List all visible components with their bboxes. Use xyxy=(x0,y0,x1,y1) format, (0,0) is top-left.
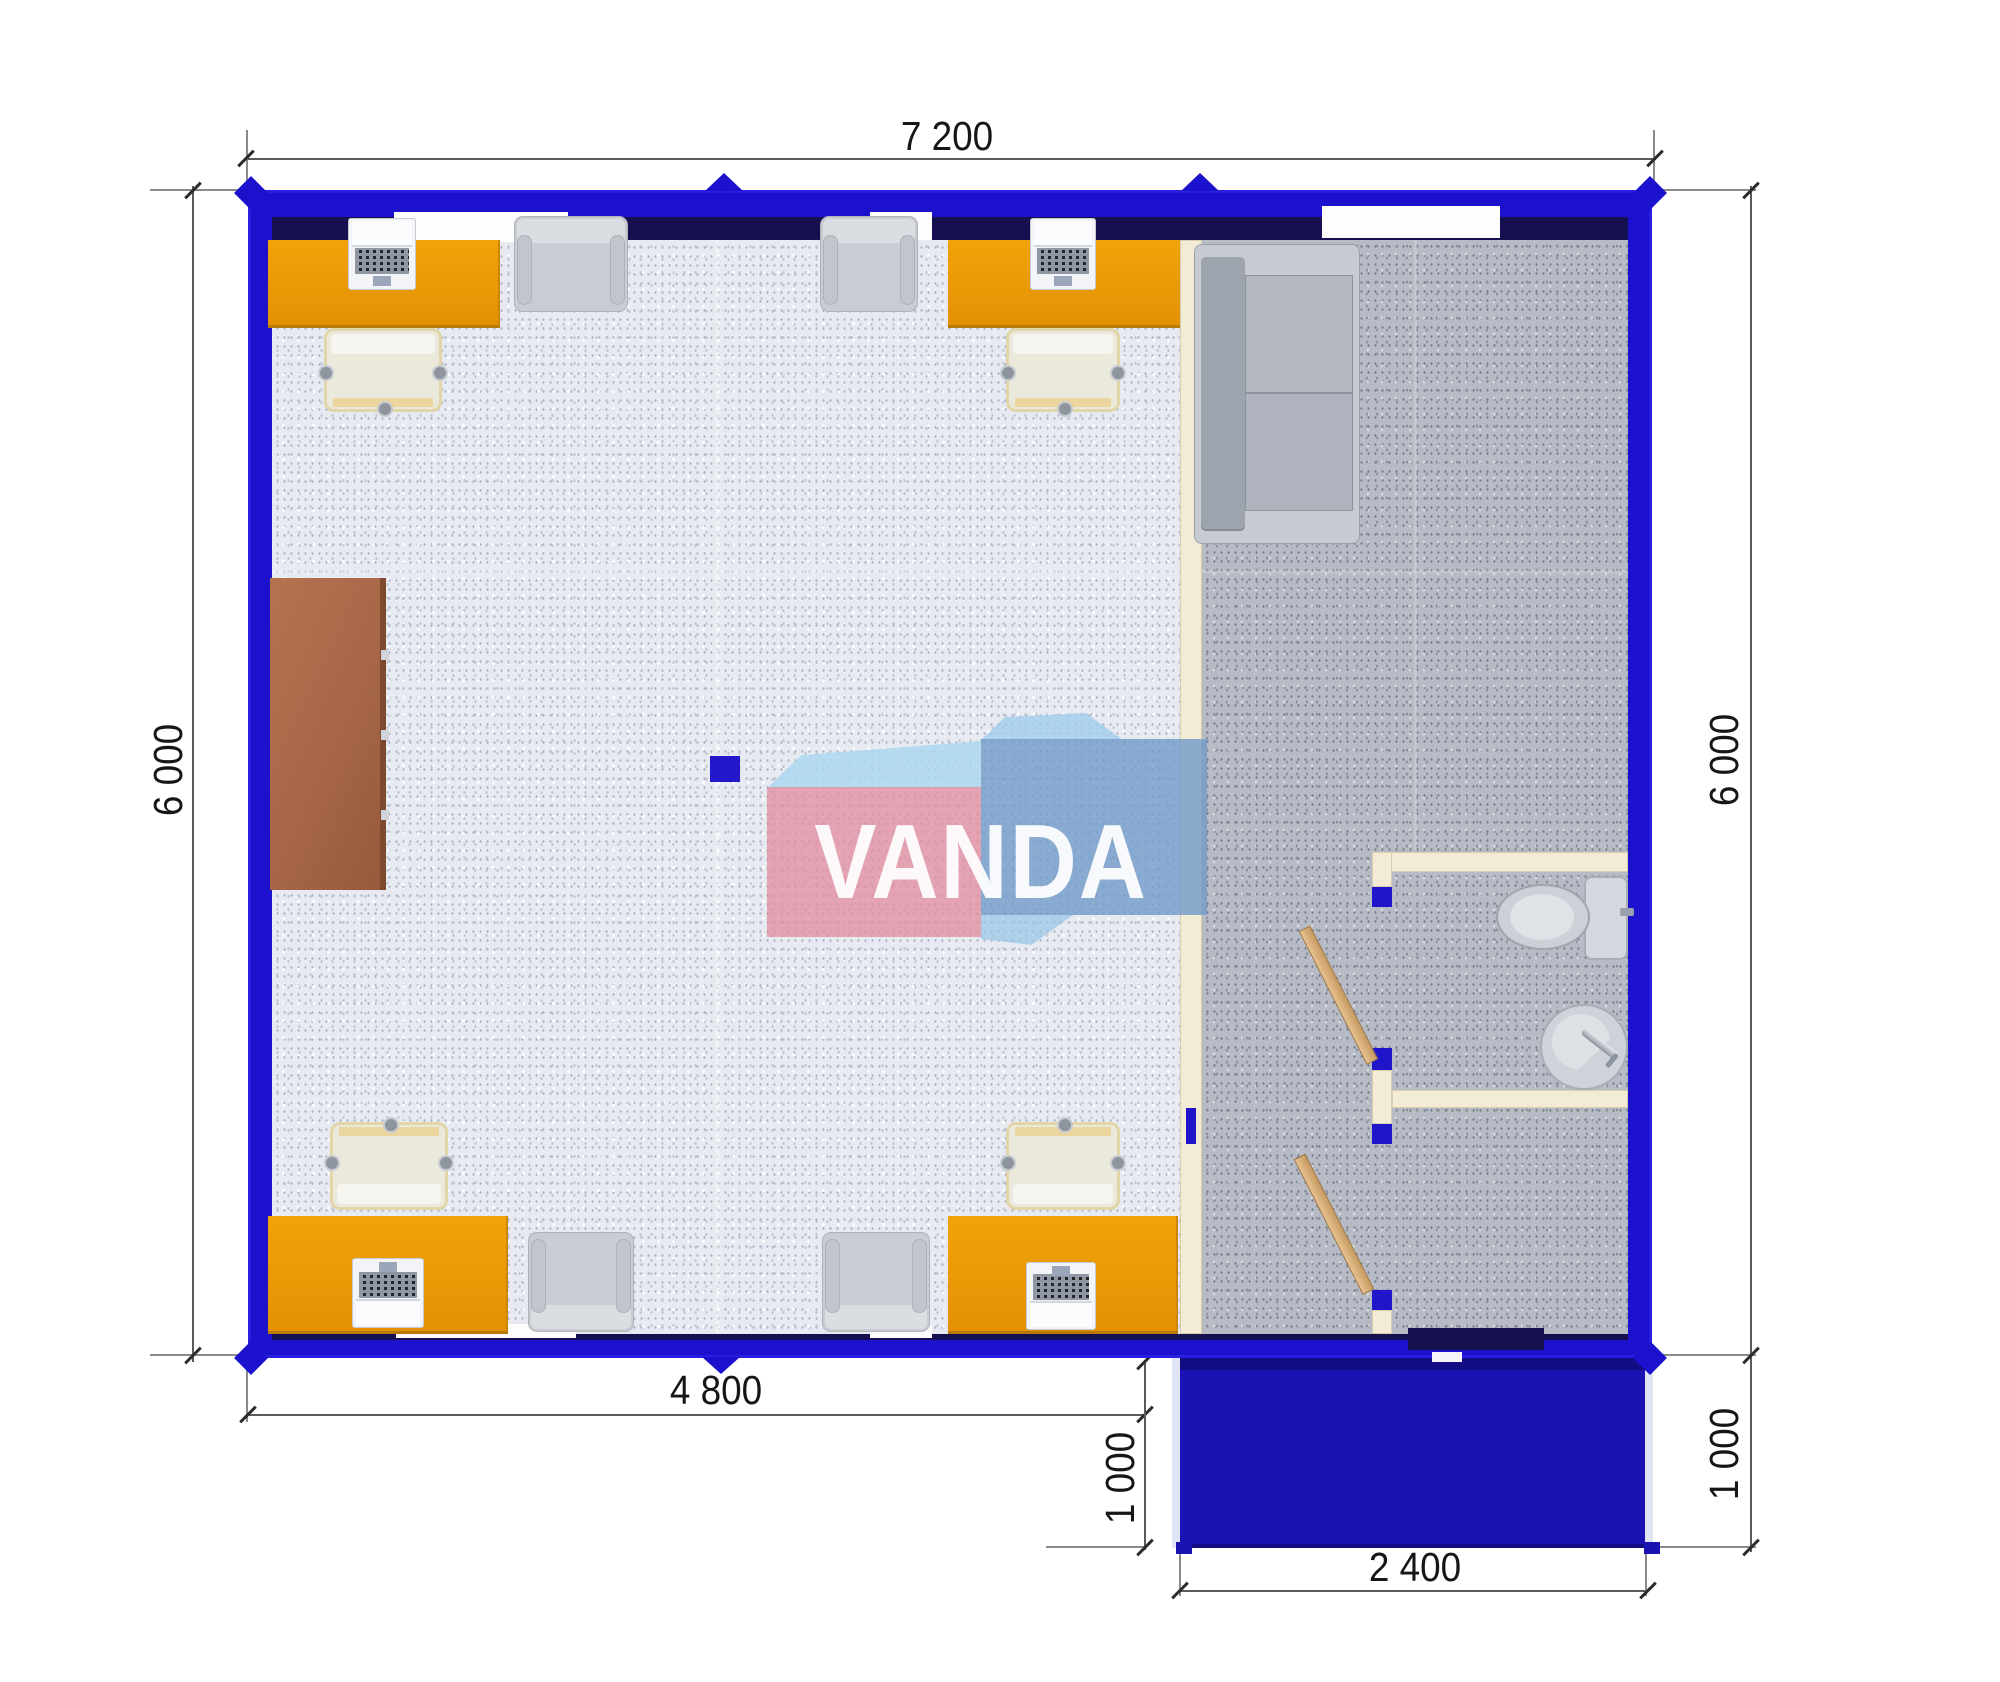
laptop-trackpad xyxy=(373,276,391,286)
watermark-text: VANDA xyxy=(792,806,1170,918)
porch-corner-post xyxy=(1176,1542,1192,1554)
sofa-seat xyxy=(1245,393,1353,511)
laptop-keyboard xyxy=(1037,248,1089,274)
cabinet-hinge xyxy=(381,730,389,740)
floor-plan-canvas: 7 200 6 000 6 000 1 000 4 800 1 000 2 40… xyxy=(0,0,2000,1682)
chair-wheel xyxy=(1110,365,1126,381)
armchair-back xyxy=(517,219,625,243)
floor-seam xyxy=(1414,240,1417,850)
laptop-keyboard xyxy=(355,248,409,274)
chair-wheel xyxy=(1000,365,1016,381)
extension-line xyxy=(1652,1354,1756,1356)
laptop-trackpad xyxy=(1054,276,1072,286)
entrance-door xyxy=(1408,1328,1544,1350)
wash-basin xyxy=(1540,1004,1628,1090)
laptop-trackpad xyxy=(1052,1266,1070,1276)
laptop-keyboard xyxy=(359,1272,417,1298)
extension-line xyxy=(150,189,246,191)
office-chair-1 xyxy=(324,328,442,412)
armchair-armrest xyxy=(912,1239,927,1313)
toilet-seat xyxy=(1510,894,1574,940)
porch-corner-post xyxy=(1644,1542,1660,1554)
office-chair-2 xyxy=(1006,328,1120,412)
module-joint-marker-top xyxy=(1181,173,1219,191)
chair-wheel xyxy=(383,1117,399,1133)
door-jamb xyxy=(1372,887,1392,907)
chair-wheel xyxy=(438,1155,454,1171)
extension-line xyxy=(1652,1546,1756,1548)
armchair-armrest xyxy=(531,1239,546,1313)
floor-seam xyxy=(272,1100,1180,1103)
module-joint-marker-top xyxy=(705,173,743,191)
toilet-tank xyxy=(1584,876,1628,960)
laptop-screen xyxy=(1034,221,1092,247)
chair-wheel xyxy=(1000,1155,1016,1171)
door-jamb xyxy=(1372,1124,1392,1144)
chair-back xyxy=(1013,1184,1113,1204)
floor-seam xyxy=(272,570,1180,573)
chair-wheel xyxy=(432,365,448,381)
laptop-keyboard xyxy=(1033,1274,1089,1300)
chair-wheel xyxy=(318,365,334,381)
chair-wheel xyxy=(324,1155,340,1171)
dimension-line-porch-left xyxy=(1144,1360,1146,1550)
window-top-3 xyxy=(1322,206,1500,238)
chair-wheel xyxy=(1057,401,1073,417)
office-chair-3 xyxy=(330,1122,448,1210)
dimension-label-porch-left: 1 000 xyxy=(1098,1402,1142,1555)
laptop-4 xyxy=(1026,1262,1096,1330)
armchair-1 xyxy=(514,216,628,312)
chair-wheel xyxy=(1057,1117,1073,1133)
floor-seam xyxy=(716,240,719,1334)
laptop-2 xyxy=(1030,218,1096,290)
dimension-label-office-width: 4 800 xyxy=(640,1368,793,1412)
porch-edge-left xyxy=(1172,1358,1180,1548)
support-column xyxy=(710,756,740,782)
toilet-flush-button xyxy=(1620,908,1634,916)
armchair-3 xyxy=(528,1232,634,1332)
chair-wheel xyxy=(1110,1155,1126,1171)
door-jamb xyxy=(1372,1290,1392,1310)
sofa-back xyxy=(1201,257,1245,531)
laptop-screen xyxy=(1030,1301,1092,1327)
armchair-armrest xyxy=(900,235,915,305)
dimension-line-right xyxy=(1750,186,1752,1552)
module-joint-marker-bottom xyxy=(702,1357,740,1374)
armchair-armrest xyxy=(610,235,625,305)
chair-back xyxy=(337,1184,441,1204)
dimension-label-right: 6 000 xyxy=(1702,684,1746,837)
dimension-line-office-width xyxy=(246,1414,1146,1416)
dimension-label-porch-width: 2 400 xyxy=(1339,1545,1492,1589)
armchair-armrest xyxy=(825,1239,840,1313)
extension-line xyxy=(1658,189,1756,191)
wc-wall-left-segment xyxy=(1372,852,1392,887)
cabinet-hinge xyxy=(381,650,389,660)
chair-back xyxy=(331,334,435,354)
entrance-door-handle xyxy=(1432,1352,1462,1362)
wc-wall-middle xyxy=(1392,1090,1628,1108)
armchair-armrest xyxy=(616,1239,631,1313)
armchair-4 xyxy=(822,1232,930,1332)
sofa-seat xyxy=(1245,275,1353,393)
dimension-line-left xyxy=(192,186,194,1362)
sofa xyxy=(1194,244,1360,544)
chair-back xyxy=(1013,334,1113,354)
dimension-label-left: 6 000 xyxy=(146,694,190,847)
armchair-armrest xyxy=(823,235,838,305)
laptop-3 xyxy=(352,1258,424,1328)
wc-wall-left-segment xyxy=(1372,1070,1392,1124)
laptop-screen xyxy=(356,1299,420,1325)
porch-edge-right xyxy=(1645,1358,1653,1548)
toilet-bowl xyxy=(1496,884,1590,950)
dimension-label-porch-right: 1 000 xyxy=(1702,1378,1746,1531)
cabinet-hinge xyxy=(381,810,389,820)
dimension-line-porch-width xyxy=(1178,1590,1648,1592)
brown-cabinet xyxy=(270,578,386,890)
porch-canopy xyxy=(1180,1358,1645,1548)
partition-door-jamb xyxy=(1186,1108,1196,1144)
chair-wheel xyxy=(377,401,393,417)
extension-line xyxy=(150,1354,246,1356)
dimension-label-top: 7 200 xyxy=(871,114,1024,158)
laptop-trackpad xyxy=(379,1262,397,1272)
laptop-screen xyxy=(352,221,412,247)
wc-wall-top xyxy=(1372,852,1628,872)
armchair-armrest xyxy=(517,235,532,305)
office-chair-4 xyxy=(1006,1122,1120,1210)
wc-wall-left-segment xyxy=(1372,1310,1392,1334)
armchair-2 xyxy=(820,216,918,312)
laptop-1 xyxy=(348,218,416,290)
